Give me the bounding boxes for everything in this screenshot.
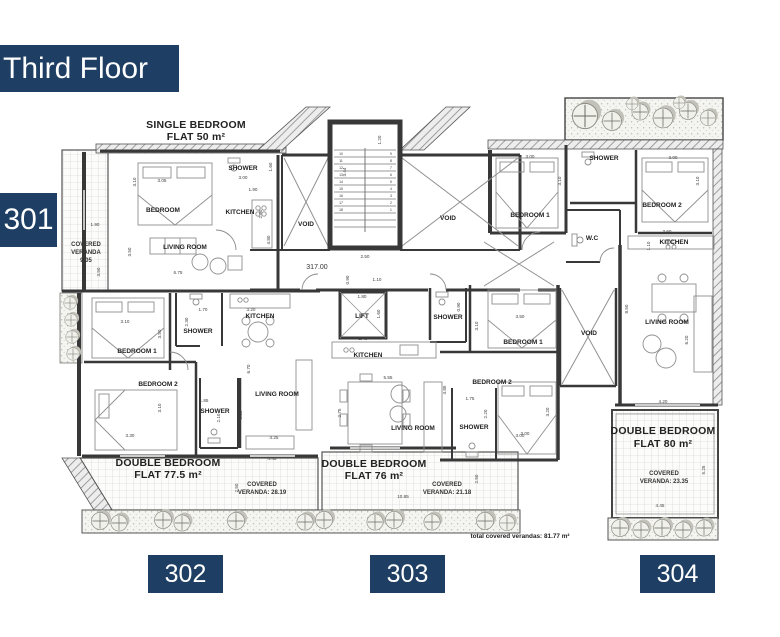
room-label: KITCHEN [660,239,689,246]
room-label: LIVING ROOM [391,425,435,432]
svg-text:16: 16 [339,194,343,198]
svg-text:11: 11 [339,159,343,163]
bed [642,158,708,222]
dim-label: 3.10 [557,176,562,185]
dim-label: 4.80 [266,235,271,244]
veranda-label: VERANDA [71,250,101,256]
void-label: VOID [440,215,456,222]
dim-label: 1.90 [249,187,258,192]
dim-label: 4.85 [442,385,447,394]
flat-title: DOUBLE BEDROOM [116,457,221,469]
doors [170,230,614,370]
svg-text:14: 14 [339,180,343,184]
dim-label: 4.20 [659,399,668,404]
dim-label: 1.80 [358,294,367,299]
svg-text:17: 17 [339,201,343,205]
dim-label: 10.85 [397,494,409,499]
dim-label: 4.45 [656,503,665,508]
floor-plan-drawing: SINGLE BEDROOM FLAT 50 m² DOUBLE BEDROOM… [0,0,780,637]
total-verandas-note: total covered verandas: 81.77 m² [470,533,569,540]
svg-text:4: 4 [390,187,392,191]
room-label: KITCHEN [246,313,275,320]
bed [95,390,177,450]
level-annotation: 317.00 [306,264,328,271]
dim-label: 3.10 [132,177,137,186]
flat-title: DOUBLE BEDROOM [322,458,427,470]
dim-label: 8.50 [624,304,629,313]
flat-area: FLAT 76 m² [345,470,404,482]
dim-label: 3.30 [126,433,135,438]
dim-label: 3.50 [157,329,162,338]
dim-label: 3.44 [342,167,347,176]
room-label: KITCHEN [226,209,255,216]
dim-label: 0.90 [456,302,461,311]
room-label: BEDROOM 1 [510,212,550,219]
dim-label: 6.75 [174,270,183,275]
veranda-label: COVERED [649,471,679,477]
room-label: SHOWER [589,155,619,162]
veranda-value: 9.05 [80,258,92,264]
dim-label: 3.00 [239,175,248,180]
dim-label: 3.50 [96,267,101,276]
veranda-label: COVERED [247,482,277,488]
room-label: SHOWER [459,424,489,431]
dim-label: 3.10 [474,321,479,330]
dim-label: 1.10 [373,277,382,282]
dim-label: 1.90 [91,222,100,227]
dim-label: 4.25 [270,435,279,440]
room-label: LIVING ROOM [645,319,689,326]
dim-label: 4.45 [268,456,277,461]
dim-label: 5.25 [701,465,706,474]
room-label: W.C [586,235,599,242]
svg-text:15: 15 [339,187,343,191]
dim-label: 6.70 [246,364,251,373]
svg-text:7: 7 [390,166,392,170]
svg-text:1: 1 [390,208,392,212]
room-label: BEDROOM 1 [503,339,543,346]
flat-area: FLAT 77.5 m² [134,469,202,481]
dim-label: 0.90 [345,275,350,284]
svg-text:6: 6 [390,173,392,177]
room-label: BEDROOM 1 [117,348,157,355]
dim-label: 1.70 [199,307,208,312]
dim-label: 3.00 [669,155,678,160]
veranda-label: COVERED [432,482,462,488]
room-label: BEDROOM 2 [642,202,682,209]
veranda-label: COVERED [71,242,101,248]
dim-label: 3.20 [247,307,256,312]
dim-label: 1.20 [377,135,382,144]
dim-label: 1.60 [268,162,273,171]
dim-label: 2.50 [474,474,479,483]
dim-label: 2.20 [483,409,488,418]
svg-text:9: 9 [390,152,392,156]
dim-label: 3.05 [158,178,167,183]
room-label: KITCHEN [354,352,383,359]
bed [498,382,556,454]
void-label: VOID [298,221,314,228]
dim-label: 1.85 [200,398,209,403]
dim-label: 1.75 [466,396,475,401]
dim-label: 3.25 [238,410,243,419]
svg-text:2: 2 [390,201,392,205]
dim-label: 2.30 [184,317,189,326]
svg-text:10: 10 [339,152,343,156]
veranda-value: VERANDA: 28.19 [238,490,287,496]
bed [138,163,212,225]
dim-label: 2.75 [337,408,342,417]
dim-label: 1.10 [646,241,651,250]
room-label: SHOWER [183,328,213,335]
dim-label: 2.10 [216,413,221,422]
svg-text:18: 18 [339,208,343,212]
dim-label: 3.10 [157,403,162,412]
flat-area: FLAT 80 m² [634,438,693,450]
lift-label: LIFT [355,313,369,320]
dim-label: 2.50 [234,483,239,492]
room-label: BEDROOM 2 [472,379,512,386]
dim-label: 2.50 [258,209,263,218]
room-label: SHOWER [433,314,463,321]
dim-label: 3.00 [526,154,535,159]
floor-plan-page: Third Floor 301 302 303 304 [0,0,780,637]
dim-label: 2.40 [359,336,368,341]
dim-label: 5.55 [384,375,393,380]
room-label: LIVING ROOM [163,244,207,251]
dim-label: 6.20 [684,335,689,344]
void-label: VOID [581,330,597,337]
dim-label: 3.60 [663,229,672,234]
dim-label: 3.50 [516,314,525,319]
dim-label: 3.20 [545,407,550,416]
flat-area: FLAT 50 m² [167,131,226,143]
dim-label: 3.50 [127,247,132,256]
room-label: SHOWER [228,165,258,172]
dim-label: 2.50 [361,254,370,259]
svg-text:8: 8 [390,159,392,163]
svg-text:3: 3 [390,194,392,198]
room-label: BEDROOM [146,207,180,214]
room-label: BEDROOM 2 [138,381,178,388]
dim-label: 3.10 [121,319,130,324]
room-label: LIVING ROOM [255,391,299,398]
flat-title: SINGLE BEDROOM [146,119,246,131]
flat-title: DOUBLE BEDROOM [611,425,716,437]
dim-label: 3.00 [516,433,525,438]
veranda-value: VERANDA: 21.18 [423,490,472,496]
svg-text:5: 5 [390,180,392,184]
veranda-value: VERANDA: 23.35 [640,479,689,485]
dim-label: 1.60 [376,309,381,318]
dim-label: 3.10 [695,176,700,185]
